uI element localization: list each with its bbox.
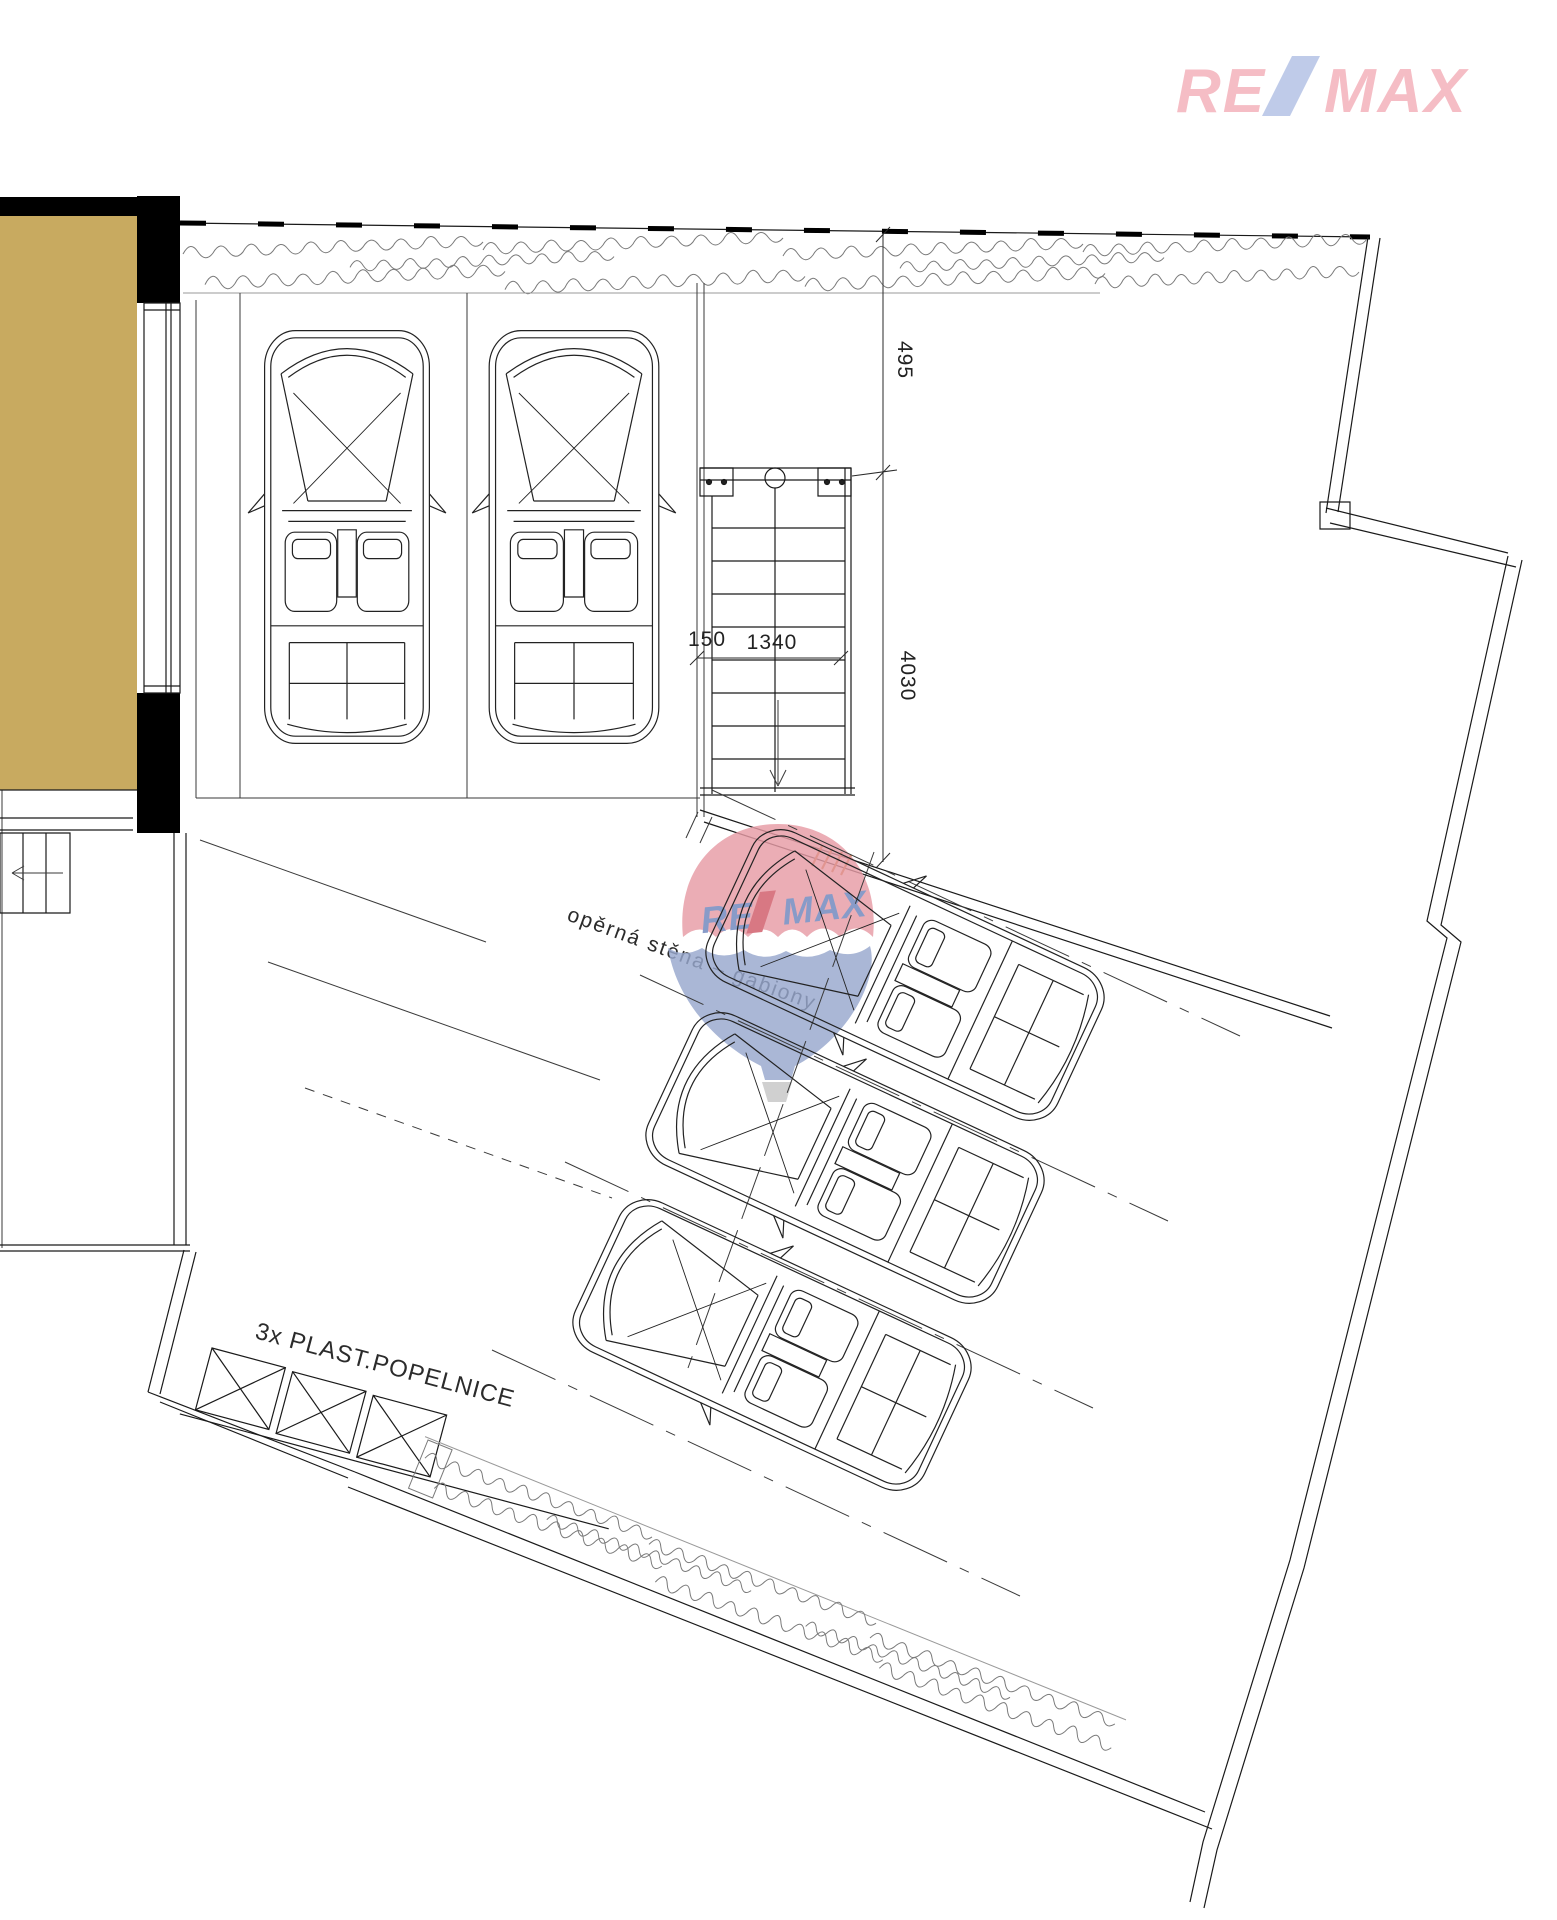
building-wall-top [0, 197, 137, 216]
dim-label-495: 495 [893, 341, 916, 379]
building-wall-corner-top [137, 196, 180, 303]
logo-max-text: MAX [1324, 57, 1469, 126]
logo-re-text: RE [1176, 57, 1266, 126]
dim-label-150: 150 [688, 628, 726, 651]
room-floor-fill [0, 216, 137, 790]
watermark-re-text: RE [699, 895, 757, 941]
building-wall-corner-bottom [137, 693, 180, 833]
dim-label-4030: 4030 [896, 651, 919, 702]
site-plan-drawing: RE MAX [0, 0, 1557, 1920]
dim-label-1340: 1340 [747, 631, 798, 654]
